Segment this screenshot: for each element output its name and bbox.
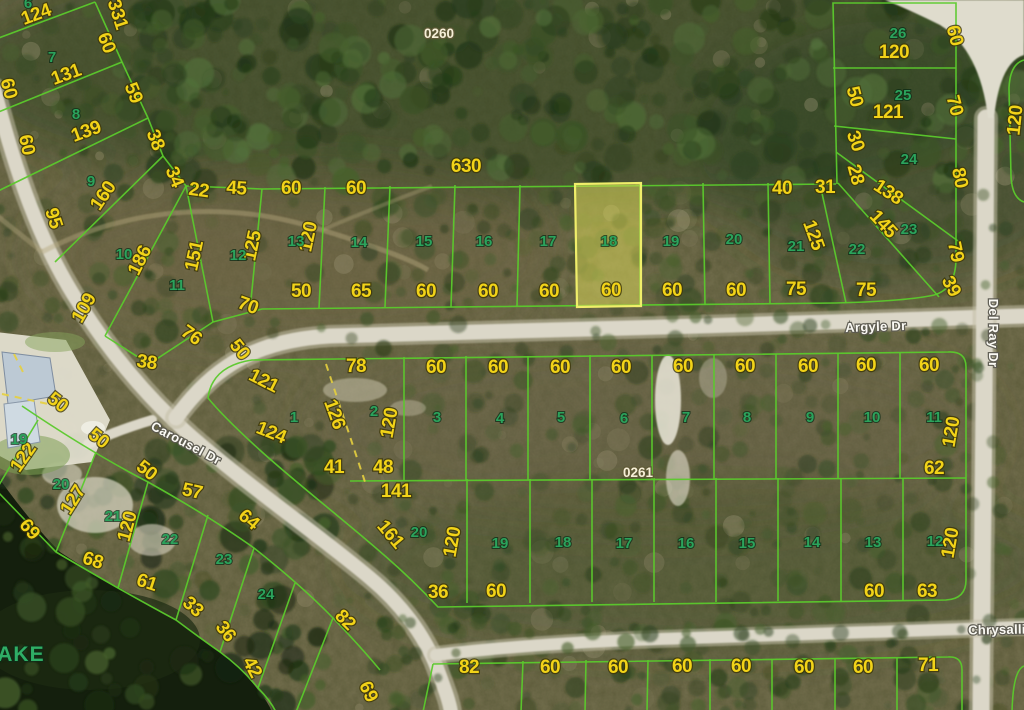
lot-number: 20 <box>411 524 428 541</box>
dimension-label: 80 <box>947 166 972 190</box>
lot-number: 24 <box>901 151 918 168</box>
dimension-label: 60 <box>486 581 506 602</box>
dimension-label: 45 <box>226 177 248 199</box>
dimension-label: 48 <box>373 457 393 478</box>
lot-number: 19 <box>663 233 680 250</box>
lot-number: 22 <box>849 241 866 258</box>
block-number: 0260 <box>424 26 454 41</box>
lot-number: 19 <box>11 431 28 448</box>
lot-number: 21 <box>788 238 805 255</box>
dimension-label: 36 <box>428 582 448 603</box>
lot-number: 18 <box>555 534 572 551</box>
lot-number: 23 <box>901 221 918 238</box>
dimension-label: 630 <box>451 156 481 177</box>
lot-number: 26 <box>890 25 907 42</box>
dimension-label: 31 <box>815 177 836 198</box>
dimension-label: 40 <box>772 178 792 199</box>
dimension-label: 82 <box>459 657 479 678</box>
dimension-label: 60 <box>864 581 884 602</box>
lot-number: 12 <box>230 247 247 264</box>
aerial-parcel-map[interactable]: 3311246013159601393860341609518610915122… <box>0 0 1024 710</box>
dimension-label: 71 <box>918 655 939 676</box>
dimension-label: 60 <box>540 657 560 678</box>
lot-number: 17 <box>540 233 557 250</box>
lot-number: 7 <box>48 49 56 66</box>
dimension-label: 60 <box>798 356 818 377</box>
dimension-label: 60 <box>416 281 436 302</box>
lot-number: 10 <box>116 246 133 263</box>
dimension-label: 60 <box>731 656 751 677</box>
dimension-label: 60 <box>673 356 693 377</box>
street-name: Chrysalli <box>968 621 1024 637</box>
lot-number: 20 <box>53 476 70 493</box>
dimension-label: 38 <box>135 351 158 375</box>
lot-number: 15 <box>416 233 433 250</box>
lot-number: 25 <box>895 87 912 104</box>
dimension-label: 60 <box>478 281 498 302</box>
lot-number: 7 <box>682 409 690 426</box>
lot-number: 21 <box>105 508 122 525</box>
lot-number: 19 <box>492 535 509 552</box>
dimension-label: 60 <box>14 133 39 157</box>
dimension-label: 60 <box>662 280 682 301</box>
dimension-label: 141 <box>381 481 412 502</box>
block-number: 0261 <box>623 465 654 480</box>
lot-number: 20 <box>726 231 743 248</box>
lot-number: 23 <box>216 551 233 568</box>
lot-number: 15 <box>739 535 756 552</box>
lot-number: 6 <box>24 0 32 12</box>
lot-number: 4 <box>496 410 505 427</box>
lot-number: 17 <box>616 535 633 552</box>
lake-label: LAKE <box>0 643 45 666</box>
dimension-label: 60 <box>794 657 814 678</box>
dimension-label: 75 <box>856 280 877 301</box>
dimension-label: 60 <box>672 656 692 677</box>
lot-number: 9 <box>87 173 95 190</box>
lot-number: 16 <box>678 535 695 552</box>
lot-number: 11 <box>169 277 185 294</box>
dimension-label: 60 <box>426 357 446 378</box>
dimension-label: 60 <box>281 178 301 199</box>
dimension-label: 57 <box>180 479 204 504</box>
lot-number: 24 <box>258 586 275 603</box>
dimension-label: 60 <box>346 178 366 199</box>
lot-number: 12 <box>927 533 944 550</box>
lot-number: 16 <box>476 233 493 250</box>
lot-number: 1 <box>290 409 298 426</box>
dimension-label: 62 <box>924 458 944 479</box>
street-name: Del Ray Dr <box>986 299 1001 368</box>
lot-number: 14 <box>804 534 821 551</box>
dimension-label: 60 <box>611 357 631 378</box>
lot-number: 13 <box>288 233 305 250</box>
dimension-label: 60 <box>488 357 508 378</box>
dimension-label: 50 <box>291 281 311 302</box>
lot-number: 8 <box>72 106 80 123</box>
house-roof <box>2 352 56 404</box>
dimension-label: 120 <box>1004 104 1024 136</box>
lot-number: 6 <box>620 410 628 427</box>
lot-number: 2 <box>370 403 378 420</box>
dimension-label: 78 <box>346 356 366 377</box>
lot-number: 5 <box>557 409 565 426</box>
dimension-label: 41 <box>324 457 345 478</box>
dimension-label: 60 <box>726 280 746 301</box>
dimension-label: 60 <box>550 357 570 378</box>
lot-number: 11 <box>926 409 942 426</box>
lot-number: 8 <box>743 409 751 426</box>
lot-number: 14 <box>351 234 368 251</box>
lot-number: 3 <box>433 409 441 426</box>
dimension-label: 60 <box>856 355 876 376</box>
dimension-label: 60 <box>539 281 559 302</box>
street-name: Argyle Dr <box>845 318 907 335</box>
lot-number: 9 <box>806 409 814 426</box>
parcel-map-canvas[interactable]: 3311246013159601393860341609518610915122… <box>0 0 1024 710</box>
lot-number: 22 <box>162 531 179 548</box>
lot-number: 18 <box>601 233 618 250</box>
dimension-label: 60 <box>853 657 873 678</box>
lake-label-layer: LAKE <box>0 643 45 666</box>
dimension-label: 63 <box>917 581 937 602</box>
dimension-label: 22 <box>187 179 210 203</box>
dimension-label: 120 <box>879 42 909 63</box>
dimension-label: 60 <box>608 657 628 678</box>
dimension-label: 60 <box>601 280 621 301</box>
lot-number: 13 <box>865 534 882 551</box>
dimension-label: 65 <box>351 281 372 302</box>
dimension-label: 79 <box>943 240 968 264</box>
dimension-label: 121 <box>873 102 904 123</box>
dimension-label: 60 <box>735 356 755 377</box>
dimension-label: 60 <box>919 355 939 376</box>
dimension-label: 75 <box>786 279 807 300</box>
lot-number: 10 <box>864 409 881 426</box>
